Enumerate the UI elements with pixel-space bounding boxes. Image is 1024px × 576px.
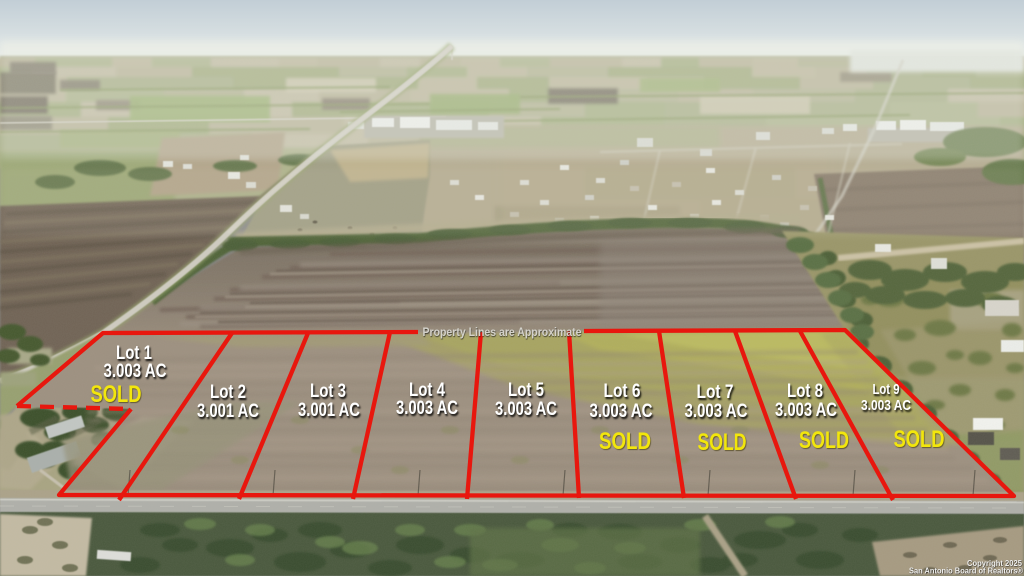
svg-text:SOLD: SOLD	[799, 427, 849, 454]
svg-text:Lot 6: Lot 6	[604, 381, 641, 402]
svg-text:3.003 AC: 3.003 AC	[495, 399, 557, 420]
svg-text:San Antonio Board of Realtors®: San Antonio Board of Realtors®	[909, 567, 1023, 576]
svg-text:3.003 AC: 3.003 AC	[685, 401, 748, 422]
svg-text:3.003 AC: 3.003 AC	[396, 398, 458, 419]
svg-text:Lot 3: Lot 3	[310, 381, 346, 402]
svg-text:SOLD: SOLD	[91, 381, 142, 408]
svg-text:Lot 7: Lot 7	[697, 382, 734, 403]
svg-text:3.003 AC: 3.003 AC	[590, 401, 653, 422]
svg-text:Lot 5: Lot 5	[508, 380, 544, 401]
svg-text:3.003 AC: 3.003 AC	[775, 400, 837, 421]
svg-text:SOLD: SOLD	[894, 426, 945, 453]
svg-text:Lot 9: Lot 9	[873, 381, 900, 398]
svg-text:Property Lines are Approximate: Property Lines are Approximate	[423, 325, 582, 339]
svg-text:Lot 2: Lot 2	[210, 382, 246, 403]
svg-text:3.003 AC: 3.003 AC	[861, 397, 911, 414]
svg-text:3.001 AC: 3.001 AC	[197, 401, 259, 422]
svg-text:SOLD: SOLD	[599, 428, 651, 455]
svg-text:3.003 AC: 3.003 AC	[104, 361, 167, 382]
svg-text:SOLD: SOLD	[698, 429, 747, 456]
svg-text:3.001 AC: 3.001 AC	[298, 400, 360, 421]
svg-text:Lot 8: Lot 8	[787, 381, 823, 402]
